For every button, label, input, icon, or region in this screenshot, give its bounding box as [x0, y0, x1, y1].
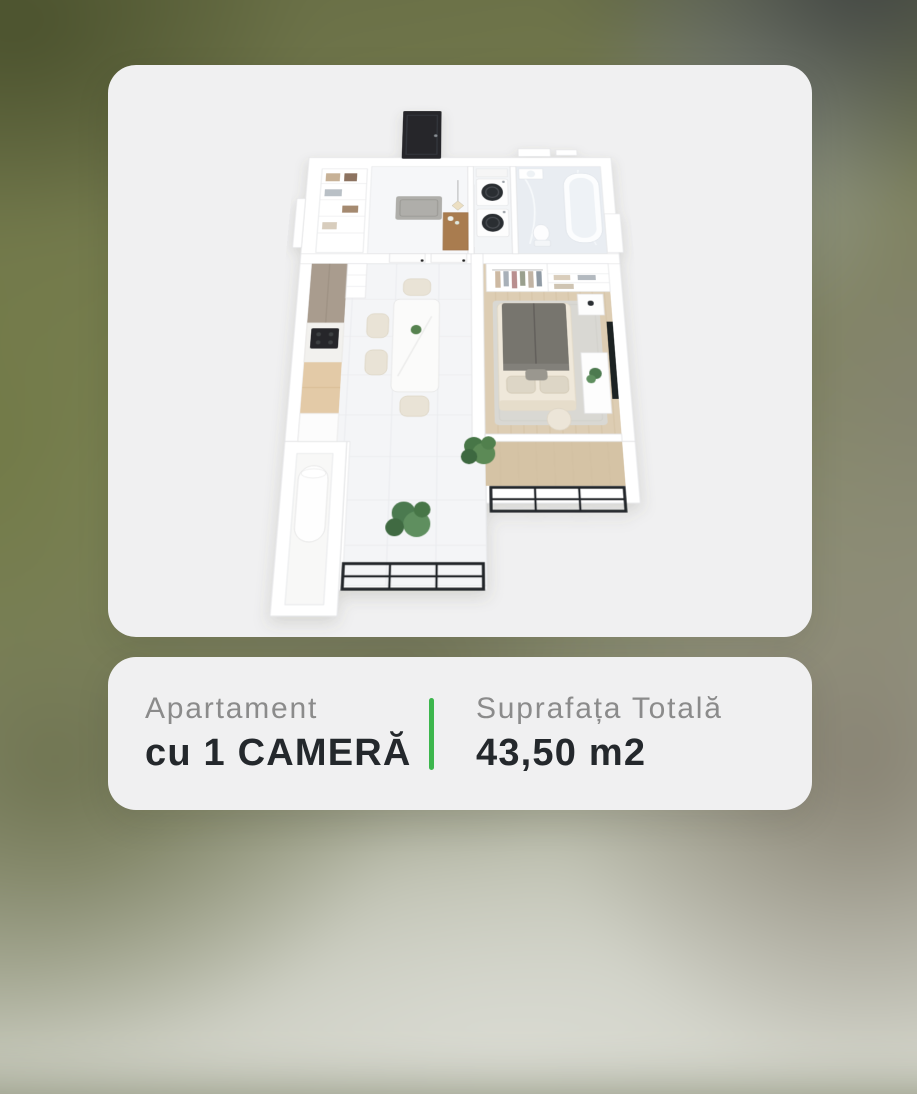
- water-heater: [293, 466, 329, 542]
- dining-chair: [403, 279, 431, 296]
- cooktop: [310, 328, 339, 348]
- dining-chair: [366, 314, 389, 338]
- console-table: [443, 213, 468, 250]
- apartment-type-label: Apartament: [145, 693, 429, 725]
- dining-chair: [400, 396, 429, 416]
- apartment-info-card[interactable]: Apartament cu 1 CAMERĂ Suprafața Totală …: [108, 657, 812, 810]
- washer-dryer-stack: [476, 169, 509, 237]
- green-divider: [429, 698, 434, 770]
- hall-shelving-unit: [316, 169, 368, 253]
- tv-console: [581, 353, 612, 414]
- bed: [497, 303, 576, 410]
- headboard-bench: [499, 400, 576, 410]
- open-wardrobe: [486, 264, 610, 292]
- floor-plan-svg: [250, 101, 671, 637]
- dining-chair: [365, 350, 388, 375]
- bathroom-sink: [519, 169, 543, 179]
- nightstand: [577, 294, 604, 315]
- apartment-type-value: cu 1 CAMERĂ: [145, 734, 429, 774]
- throw-pillow: [525, 369, 548, 380]
- floor-plan-image: [225, 71, 695, 631]
- total-area-label: Suprafața Totală: [476, 693, 723, 725]
- floor-plan-card[interactable]: [108, 65, 812, 637]
- apartment-type-block: Apartament cu 1 CAMERĂ: [145, 693, 429, 774]
- total-area-block: Suprafața Totală 43,50 m2: [476, 693, 723, 774]
- total-area-value: 43,50 m2: [476, 734, 723, 774]
